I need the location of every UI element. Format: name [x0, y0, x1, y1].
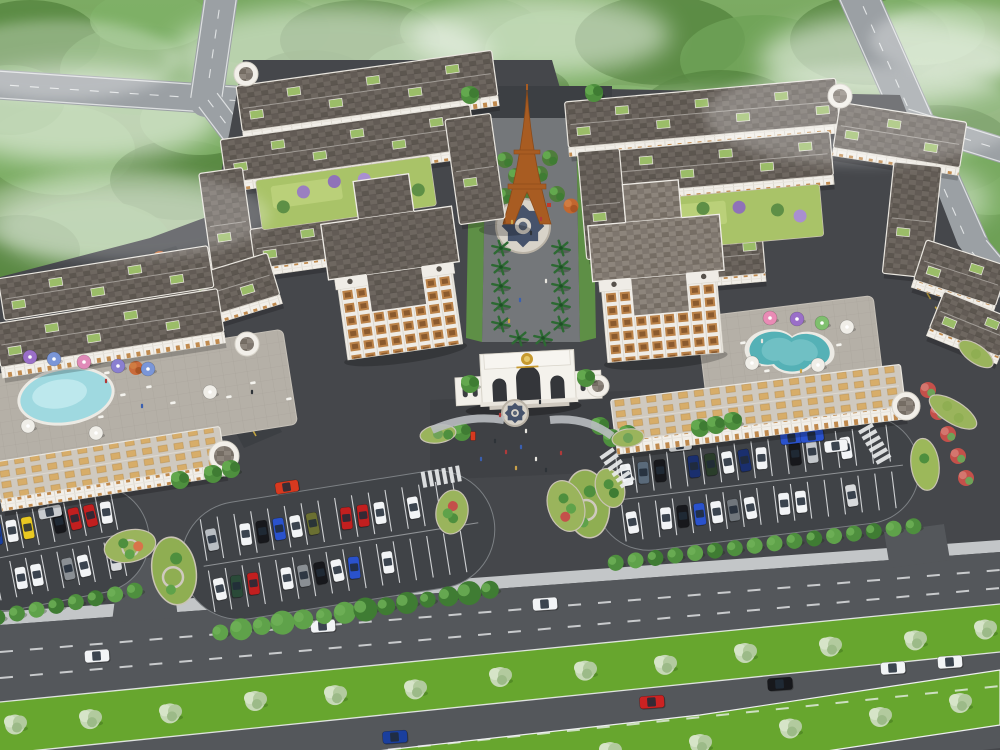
tree-canopy [469, 88, 479, 98]
plaza-fountain [513, 411, 517, 415]
umbrella-pole [845, 325, 849, 329]
car-windshield [662, 514, 671, 522]
dormer-window [435, 265, 442, 272]
umbrella-pole [820, 321, 824, 325]
car-windshield [390, 732, 399, 742]
car-windshield [249, 579, 258, 588]
roof-garden [91, 287, 105, 297]
tree-canopy [543, 151, 551, 159]
roof-garden [695, 99, 709, 108]
aerial-render-svg [0, 0, 1000, 750]
umbrella-pole [795, 317, 799, 321]
car [636, 461, 649, 485]
roof-garden [329, 98, 343, 108]
dormer-window [346, 278, 353, 285]
tree-canopy [461, 425, 471, 435]
roof-garden [392, 140, 406, 150]
tree-canopy [593, 86, 603, 96]
tree-canopy [498, 153, 506, 161]
car [659, 507, 673, 531]
tree-canopy [469, 377, 479, 387]
umbrella-pole [28, 355, 32, 359]
corner-pavilion [235, 332, 259, 356]
car-windshield [689, 462, 698, 471]
tree-canopy [957, 701, 967, 711]
car-windshield [729, 505, 738, 514]
car-windshield [299, 571, 308, 580]
tree-canopy [212, 467, 222, 477]
car-windshield [7, 526, 16, 535]
umbrella-pole [82, 360, 86, 364]
car-windshield [775, 679, 784, 689]
car [754, 447, 767, 471]
pavilion-roof [239, 67, 253, 81]
car-windshield [656, 466, 665, 474]
tree [950, 448, 966, 464]
tree-canopy [732, 414, 742, 424]
tree [564, 199, 579, 214]
palm-crown [517, 336, 521, 340]
umbrella-pole [26, 424, 30, 428]
car [788, 443, 802, 467]
car-windshield [23, 523, 32, 532]
car-windshield [409, 503, 418, 512]
roof-garden [49, 277, 63, 287]
palm-crown [499, 265, 503, 269]
car [777, 492, 791, 516]
tree-canopy [959, 471, 967, 479]
cross-roof-center [358, 211, 421, 274]
car-windshield [808, 447, 817, 456]
car-windshield [258, 527, 267, 536]
car [880, 661, 907, 676]
umbrella-pole [750, 361, 754, 365]
roof-garden [593, 212, 607, 221]
car [767, 677, 794, 692]
roof-garden [8, 346, 22, 356]
tree-canopy [556, 193, 564, 201]
palm-crown [541, 336, 545, 340]
roof-garden [166, 321, 180, 331]
car [794, 490, 808, 514]
car-windshield [723, 458, 732, 467]
car-windshield [746, 503, 755, 512]
gate-side-arch [492, 378, 507, 404]
person [505, 450, 507, 455]
person [535, 457, 537, 462]
tree-canopy [982, 627, 992, 637]
roof-garden [350, 129, 364, 139]
car [347, 556, 361, 580]
outer-road [206, 0, 222, 100]
car [653, 459, 667, 483]
tree-canopy [230, 462, 240, 472]
roof-garden [313, 151, 327, 161]
car [339, 507, 353, 531]
car-windshield [232, 582, 241, 590]
car-windshield [757, 454, 766, 462]
car [84, 649, 111, 664]
person [539, 400, 541, 405]
gate-side-arch [550, 375, 565, 401]
tree-canopy [412, 687, 422, 697]
tree-canopy [957, 455, 965, 463]
gate-central-arch [515, 365, 541, 402]
car-windshield [780, 499, 789, 507]
person [141, 404, 143, 409]
tree-canopy [549, 157, 557, 165]
person [519, 298, 521, 303]
tree [549, 186, 565, 202]
umbrella-pole [52, 357, 56, 361]
cross-roof-center [626, 218, 687, 279]
car-windshield [791, 449, 800, 457]
person [105, 379, 107, 384]
car-windshield [679, 512, 688, 520]
kiosk [547, 203, 551, 207]
roof-garden [300, 229, 314, 239]
car-windshield [628, 518, 637, 527]
car-windshield [945, 657, 954, 667]
palm-crown [499, 303, 503, 307]
tower-platform [514, 150, 540, 154]
tree-canopy [167, 711, 177, 721]
corner-pavilion [892, 392, 920, 420]
car-windshield [342, 514, 351, 522]
roof-garden [408, 87, 422, 97]
roof-garden [615, 106, 629, 115]
roof-garden [45, 323, 59, 333]
tree-canopy [715, 418, 725, 428]
person [530, 231, 532, 236]
person [515, 466, 517, 471]
car-windshield [888, 663, 897, 673]
tree-canopy [662, 663, 672, 673]
pavilion-roof [240, 337, 254, 351]
tree-canopy [947, 433, 955, 441]
palm-crown [559, 284, 563, 288]
tree [542, 150, 558, 166]
person [545, 279, 547, 284]
car-windshield [102, 508, 111, 517]
dormer-window [700, 273, 707, 280]
person [511, 220, 513, 225]
roof-garden [680, 169, 694, 178]
car-windshield [17, 573, 26, 582]
tree-canopy [550, 187, 558, 195]
car-windshield [316, 568, 325, 577]
tree-canopy [827, 645, 837, 655]
tree-canopy [252, 699, 262, 709]
car [676, 505, 690, 529]
roof-garden [124, 310, 138, 320]
roof-garden [250, 109, 264, 119]
roof-garden [128, 265, 142, 275]
gate-fountain-plaza [502, 400, 528, 426]
palm-crown [499, 322, 503, 326]
roof-garden [639, 156, 653, 165]
car [639, 695, 666, 710]
person [520, 445, 522, 450]
roof-garden [760, 162, 774, 171]
tree [958, 470, 974, 486]
corner-pavilion [234, 62, 258, 86]
person [540, 217, 542, 222]
roof-garden [429, 117, 443, 127]
car-windshield [706, 460, 715, 469]
roof-garden [463, 177, 477, 187]
car-windshield [375, 508, 384, 517]
car-windshield [241, 530, 250, 539]
palm-crown [559, 303, 563, 307]
car [229, 575, 243, 599]
tree-canopy [130, 362, 137, 369]
roof-garden [743, 242, 757, 251]
palm-crown [499, 284, 503, 288]
tree-canopy [332, 693, 342, 703]
palm-crown [559, 322, 563, 326]
roof-garden [271, 140, 285, 150]
person [545, 468, 547, 473]
car-windshield [92, 651, 101, 661]
car-windshield [797, 497, 806, 505]
car-windshield [359, 511, 368, 520]
car-windshield [540, 599, 549, 609]
tree-canopy [570, 205, 578, 213]
tree-canopy [12, 723, 22, 733]
umbrella-pole [768, 316, 772, 320]
person [494, 439, 496, 444]
tree-canopy [497, 675, 507, 685]
tree-canopy [564, 200, 572, 208]
car-windshield [639, 468, 648, 476]
car-windshield [275, 524, 284, 533]
car-windshield [740, 455, 749, 464]
tree-canopy [912, 638, 922, 648]
person [525, 429, 527, 434]
person [508, 319, 510, 324]
umbrella-pole [146, 367, 150, 371]
umbrella-pole [208, 390, 212, 394]
car-windshield [282, 574, 291, 583]
food-cart [471, 432, 476, 441]
roof-garden [577, 127, 591, 136]
tree-canopy [585, 371, 595, 381]
pavilion-roof [897, 397, 915, 415]
car-windshield [282, 482, 291, 492]
palm-crown [559, 246, 563, 250]
car-windshield [350, 563, 359, 571]
tree [940, 426, 956, 442]
car-windshield [32, 570, 41, 579]
aerial-render-viewport [0, 0, 1000, 750]
person [251, 390, 253, 395]
person [499, 413, 501, 418]
person [800, 369, 802, 374]
tree-canopy [921, 383, 929, 391]
roof-garden [287, 87, 301, 97]
tree-canopy [582, 669, 592, 679]
car [382, 730, 409, 745]
car [937, 655, 964, 670]
car-windshield [831, 441, 840, 451]
roof-garden [366, 75, 380, 85]
tower-platform [508, 184, 546, 189]
roof-garden [896, 227, 910, 236]
car-windshield [712, 507, 721, 516]
roof-garden [87, 333, 101, 343]
roof-garden [719, 149, 733, 158]
tree-canopy [742, 651, 752, 661]
tree-canopy [965, 477, 973, 485]
tree-canopy [951, 449, 959, 457]
tree-canopy [877, 715, 887, 725]
dormer-window [611, 281, 618, 288]
tree-canopy [787, 727, 797, 737]
car-windshield [308, 519, 317, 528]
tree [497, 152, 513, 168]
umbrella-pole [116, 364, 120, 368]
roof-garden [656, 120, 670, 129]
person [560, 451, 562, 456]
car-windshield [847, 491, 856, 500]
person [761, 339, 763, 344]
tree-canopy [504, 159, 512, 167]
person [480, 457, 482, 462]
tree-canopy [539, 173, 547, 181]
umbrella-pole [816, 363, 820, 367]
roof-garden [445, 64, 459, 74]
car-windshield [383, 558, 392, 567]
roof-garden [12, 299, 26, 309]
tree-canopy [941, 427, 949, 435]
tree-canopy [179, 473, 189, 483]
car-windshield [291, 521, 300, 530]
car [532, 597, 559, 612]
roof-garden [170, 274, 184, 284]
car-windshield [695, 509, 704, 518]
palm-crown [499, 246, 503, 250]
umbrella-pole [94, 431, 98, 435]
car-windshield [647, 697, 656, 707]
palm-crown [559, 265, 563, 269]
tree-canopy [87, 717, 97, 727]
